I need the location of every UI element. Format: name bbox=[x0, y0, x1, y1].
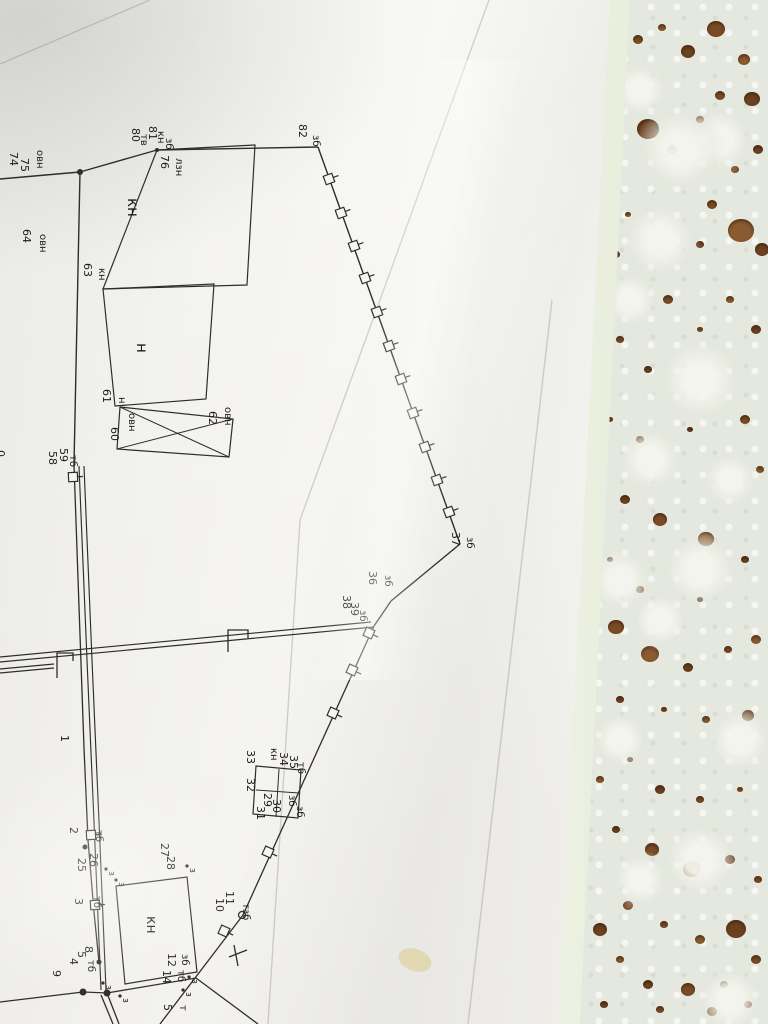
plan-label: 75 bbox=[18, 158, 31, 172]
fence-post-symbol bbox=[323, 171, 340, 184]
photo-of-survey-plan: ззззззз7475овн80тв81кнзб76лзн82зб64овнкн… bbox=[0, 0, 768, 1024]
plan-label: 27 bbox=[158, 843, 171, 857]
plan-label: н bbox=[116, 397, 127, 404]
plan-label: 61 bbox=[100, 389, 113, 403]
plan-label: зб bbox=[464, 537, 475, 548]
plan-label: 82 bbox=[296, 124, 309, 138]
plan-label: 5 bbox=[161, 1004, 174, 1011]
plan-label: зб bbox=[294, 806, 305, 817]
plan-label: 0 bbox=[0, 450, 7, 457]
plan-label: 31 bbox=[254, 806, 267, 820]
plan-label: тб bbox=[67, 455, 78, 467]
veg-marker-label: з bbox=[120, 998, 130, 1003]
fence-post-symbol bbox=[363, 627, 380, 641]
plan-label: 63 bbox=[81, 263, 94, 277]
veg-marker-label: з bbox=[183, 992, 193, 997]
plan-label: 2 bbox=[67, 827, 80, 834]
plan-label: т bbox=[177, 1005, 188, 1011]
plan-label: 3 bbox=[72, 898, 85, 905]
survey-point-dot bbox=[97, 960, 102, 965]
plan-label: зб bbox=[357, 610, 368, 621]
plan-label: 11 bbox=[223, 891, 236, 905]
plan-label: 36 bbox=[366, 571, 379, 585]
plan-label: тб bbox=[295, 762, 306, 774]
plan-label: 9 bbox=[50, 970, 63, 977]
paper-stain bbox=[395, 944, 434, 976]
plan-label: 37 bbox=[449, 532, 462, 546]
plan-label: зб bbox=[179, 954, 190, 965]
plan-label: 64 bbox=[20, 229, 33, 243]
fence-post-symbol bbox=[262, 846, 279, 860]
veg-marker-label: з bbox=[116, 882, 126, 887]
plan-label: 26 bbox=[87, 853, 100, 867]
plan-label: 1 bbox=[58, 735, 71, 742]
plan-label: овн bbox=[222, 407, 233, 426]
fence-post-symbol bbox=[419, 439, 436, 452]
plan-label: овн bbox=[126, 413, 137, 432]
plan-label: зб bbox=[163, 138, 174, 149]
plan-label: кн bbox=[124, 198, 142, 217]
survey-point-dot bbox=[104, 990, 111, 997]
fence-post-symbol bbox=[335, 205, 352, 218]
plan-label: 28 bbox=[164, 856, 177, 870]
plan-label: лзн bbox=[173, 158, 184, 176]
plan-label: 12 bbox=[165, 953, 178, 967]
fence-post-symbol bbox=[443, 504, 460, 517]
fence-post-symbol bbox=[327, 707, 344, 721]
plan-label: зб bbox=[310, 135, 321, 146]
fence-post-symbol bbox=[395, 371, 412, 384]
plan-label: 14 bbox=[160, 970, 173, 984]
plan-label: зб bbox=[286, 795, 297, 806]
plan-label: зб bbox=[382, 575, 393, 586]
survey-point-dot bbox=[77, 169, 83, 175]
plan-label: овн bbox=[37, 234, 48, 253]
plan-label: 32 bbox=[244, 778, 257, 792]
plan-label: 30 bbox=[270, 799, 283, 813]
plan-label: тб bbox=[175, 970, 186, 982]
plan-label: н bbox=[133, 343, 151, 353]
plan-label: 76 bbox=[158, 155, 171, 169]
plan-label: овн bbox=[34, 150, 45, 169]
survey-point-dot bbox=[80, 989, 87, 996]
plan-label: кн bbox=[96, 268, 107, 281]
cadastral-plan-drawing: ззззззз7475овн80тв81кнзб76лзн82зб64овнкн… bbox=[0, 0, 768, 1024]
fence-post-symbol bbox=[346, 664, 363, 678]
fence-post-symbol bbox=[359, 270, 376, 283]
fence-post-symbol bbox=[383, 338, 400, 351]
plan-label: тб bbox=[91, 896, 102, 908]
survey-point-dot bbox=[155, 148, 159, 152]
plan-label: 33 bbox=[244, 750, 257, 764]
plan-label: 62 bbox=[206, 411, 219, 425]
fence-post-symbol bbox=[371, 304, 388, 317]
building-outline bbox=[103, 284, 214, 406]
fence-post-symbol bbox=[431, 472, 448, 485]
veg-marker-label: з bbox=[187, 868, 197, 873]
plan-label: тб bbox=[85, 960, 96, 972]
plan-label: 25 bbox=[75, 858, 88, 872]
plan-label: 8 bbox=[82, 946, 95, 953]
plan-label: тб bbox=[93, 830, 104, 842]
veg-marker-label: з bbox=[103, 985, 113, 990]
plan-label: 60 bbox=[108, 427, 121, 441]
veg-marker-label: з bbox=[189, 979, 199, 984]
fence-post-symbol bbox=[68, 472, 83, 482]
plan-label: тзб bbox=[240, 903, 251, 920]
survey-point-dot bbox=[83, 845, 88, 850]
fence-post-symbol bbox=[218, 925, 235, 939]
plan-label: кн bbox=[143, 916, 159, 934]
veg-marker-label: з bbox=[106, 871, 116, 876]
fence-post-symbol bbox=[407, 405, 424, 418]
plan-label: 4 bbox=[67, 958, 80, 965]
